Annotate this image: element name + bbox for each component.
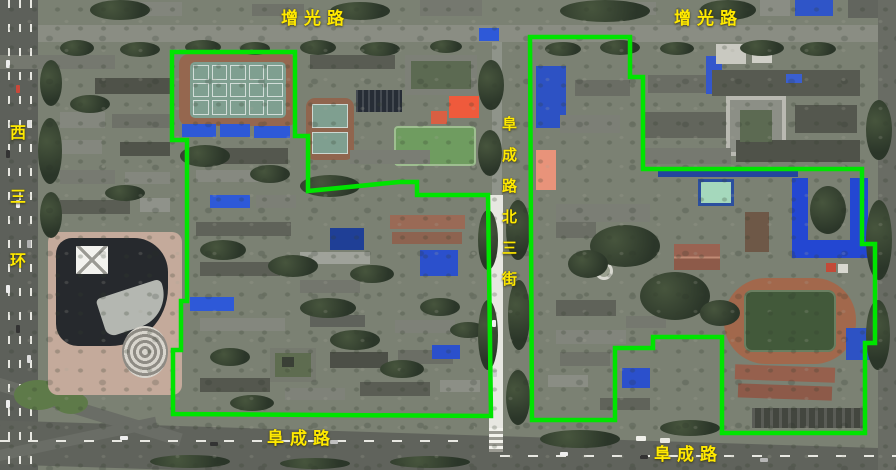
west-campus-boundary [172, 52, 491, 416]
road-label-xisanhuan: 西三环 [8, 124, 24, 316]
road-label-zengguang-left: 增光路 [281, 11, 350, 28]
road-label-zengguang-right: 增光路 [674, 11, 743, 28]
road-label-fucheng-left: 阜成路 [267, 431, 336, 448]
east-campus-boundary [530, 37, 875, 433]
road-label-fucheng-right: 阜成路 [654, 447, 723, 464]
road-label-fucheng-north-3rd-street: 阜成路北三街 [501, 116, 516, 302]
campus-boundary-overlay [0, 0, 896, 470]
satellite-map: 增光路 增光路 西三环 阜成路北三街 阜成路 阜成路 [0, 0, 896, 470]
